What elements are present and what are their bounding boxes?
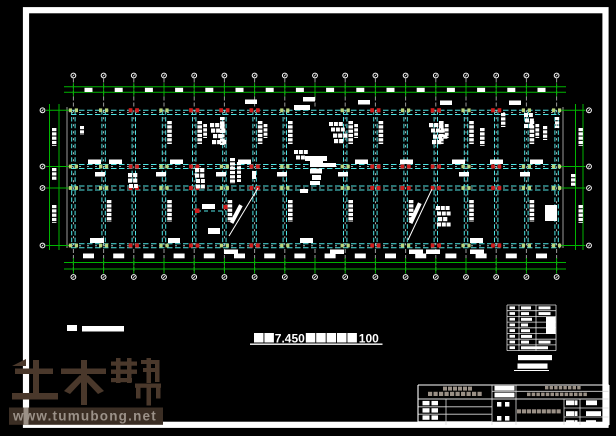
svg-text:100: 100	[359, 332, 379, 346]
svg-text:www.tumubong.net: www.tumubong.net	[12, 409, 157, 424]
svg-text:7.450: 7.450	[275, 332, 305, 346]
